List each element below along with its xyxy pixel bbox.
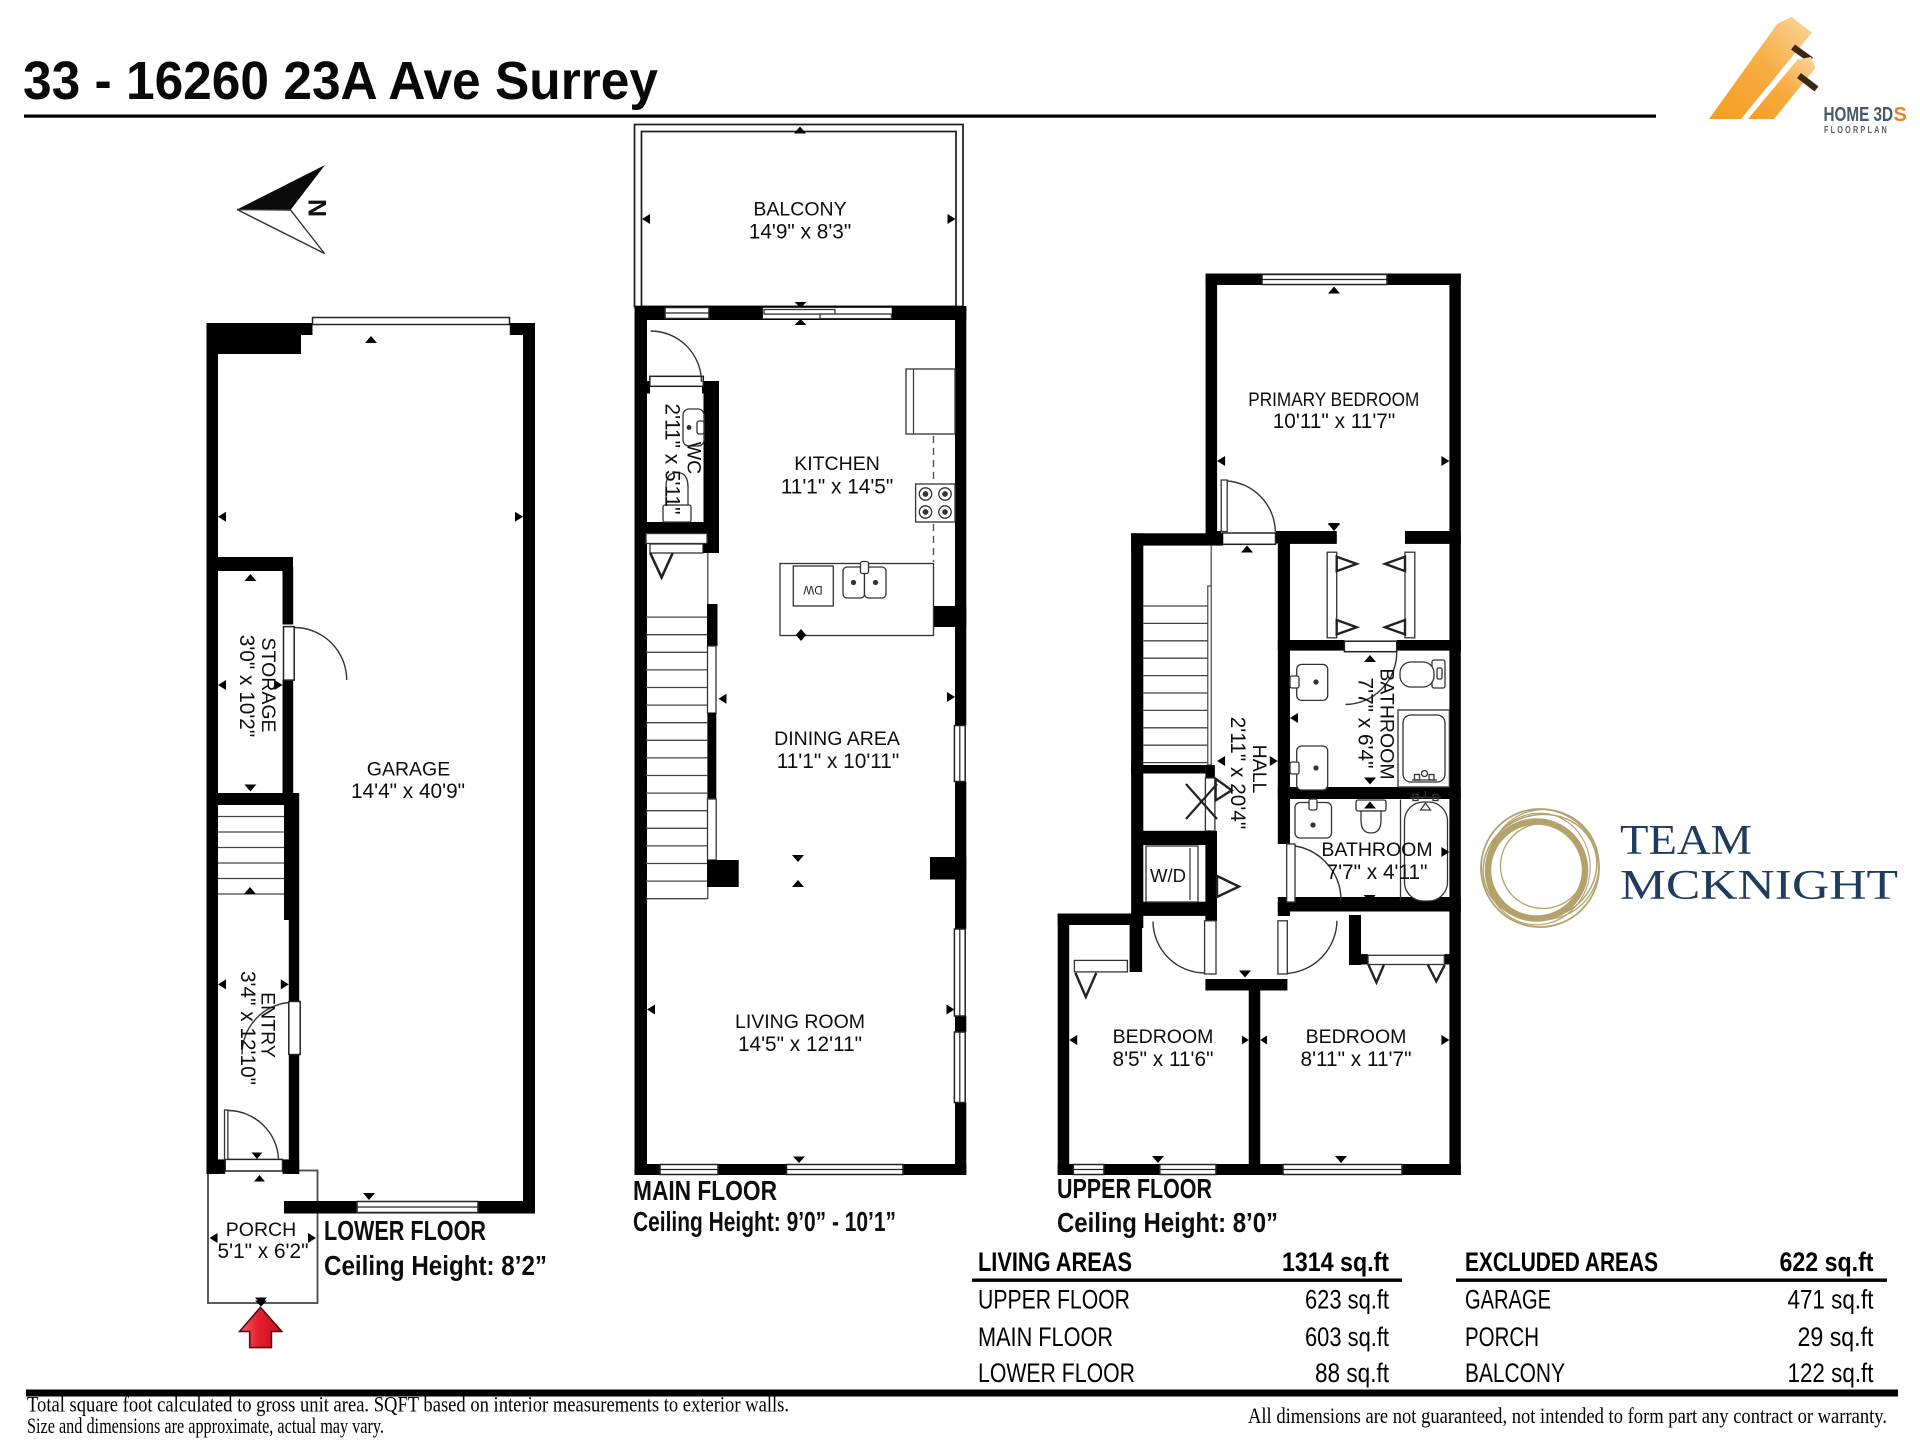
svg-text:MAIN FLOOR: MAIN FLOOR <box>633 1175 777 1206</box>
svg-text:11'1" x 14'5": 11'1" x 14'5" <box>781 476 894 499</box>
svg-text:BATHROOM: BATHROOM <box>1376 668 1398 779</box>
svg-text:3'0" x 10'2": 3'0" x 10'2" <box>235 635 258 738</box>
svg-text:Ceiling Height: 8’2”: Ceiling Height: 8’2” <box>324 1250 547 1281</box>
svg-text:WC: WC <box>683 442 705 475</box>
svg-text:PORCH: PORCH <box>1465 1322 1539 1352</box>
svg-text:BATHROOM: BATHROOM <box>1321 839 1432 861</box>
svg-text:122 sq.ft: 122 sq.ft <box>1788 1358 1874 1388</box>
svg-text:5'1" x 6'2": 5'1" x 6'2" <box>218 1240 309 1263</box>
svg-text:623 sq.ft: 623 sq.ft <box>1305 1285 1389 1315</box>
svg-text:8'5" x 11'6": 8'5" x 11'6" <box>1113 1048 1214 1071</box>
svg-text:PORCH: PORCH <box>226 1219 296 1241</box>
svg-text:14'5" x 12'11": 14'5" x 12'11" <box>738 1033 862 1056</box>
svg-text:BEDROOM: BEDROOM <box>1306 1026 1407 1048</box>
svg-text:33 - 16260 23A Ave Surrey: 33 - 16260 23A Ave Surrey <box>23 51 658 111</box>
svg-text:EXCLUDED AREAS: EXCLUDED AREAS <box>1465 1247 1658 1277</box>
svg-text:7'7" x 4'11": 7'7" x 4'11" <box>1327 861 1428 884</box>
svg-text:1314 sq.ft: 1314 sq.ft <box>1282 1247 1389 1277</box>
svg-text:N: N <box>302 199 330 217</box>
svg-text:DW: DW <box>803 583 822 595</box>
svg-text:UPPER FLOOR: UPPER FLOOR <box>1057 1173 1212 1204</box>
svg-text:UPPER FLOOR: UPPER FLOOR <box>978 1285 1130 1315</box>
svg-text:LOWER FLOOR: LOWER FLOOR <box>978 1358 1135 1388</box>
svg-text:10'11" x 11'7": 10'11" x 11'7" <box>1273 410 1396 433</box>
svg-text:7'7" x 6'4": 7'7" x 6'4" <box>1354 678 1377 769</box>
svg-text:29 sq.ft: 29 sq.ft <box>1798 1322 1874 1352</box>
svg-text:LIVING ROOM: LIVING ROOM <box>735 1011 865 1033</box>
svg-text:FLOORPLAN: FLOORPLAN <box>1824 125 1889 136</box>
svg-text:BEDROOM: BEDROOM <box>1113 1026 1214 1048</box>
svg-text:MAIN FLOOR: MAIN FLOOR <box>978 1322 1113 1352</box>
svg-text:Ceiling Height: 9’0” - 10’1”: Ceiling Height: 9’0” - 10’1” <box>633 1206 896 1237</box>
svg-text:All dimensions are not guarant: All dimensions are not guaranteed, not i… <box>1248 1403 1887 1428</box>
svg-text:STORAGE: STORAGE <box>257 638 279 733</box>
svg-text:Size and dimensions are approx: Size and dimensions are approximate, act… <box>27 1413 384 1438</box>
svg-text:KITCHEN: KITCHEN <box>794 453 880 475</box>
svg-text:14'4" x 40'9": 14'4" x 40'9" <box>351 780 465 803</box>
svg-text:GARAGE: GARAGE <box>1465 1285 1551 1315</box>
svg-text:88 sq.ft: 88 sq.ft <box>1315 1358 1389 1388</box>
svg-text:DINING AREA: DINING AREA <box>774 728 900 750</box>
svg-text:W/D: W/D <box>1150 865 1186 886</box>
svg-text:Ceiling Height: 8’0”: Ceiling Height: 8’0” <box>1057 1207 1278 1238</box>
svg-text:BALCONY: BALCONY <box>1465 1358 1565 1388</box>
svg-text:8'11" x 11'7": 8'11" x 11'7" <box>1301 1048 1412 1071</box>
svg-text:14'9" x 8'3": 14'9" x 8'3" <box>749 221 852 244</box>
svg-text:LIVING AREAS: LIVING AREAS <box>978 1247 1132 1277</box>
svg-text:S: S <box>1894 104 1907 126</box>
svg-text:MCKNIGHT: MCKNIGHT <box>1620 863 1898 909</box>
svg-text:HALL: HALL <box>1248 745 1270 794</box>
svg-text:603 sq.ft: 603 sq.ft <box>1305 1322 1389 1352</box>
svg-text:TEAM: TEAM <box>1620 818 1752 864</box>
svg-text:PRIMARY BEDROOM: PRIMARY BEDROOM <box>1248 389 1419 411</box>
svg-text:622 sq.ft: 622 sq.ft <box>1780 1247 1874 1277</box>
svg-text:HOME 3D: HOME 3D <box>1824 104 1894 126</box>
svg-text:471 sq.ft: 471 sq.ft <box>1788 1285 1874 1315</box>
svg-text:11'1" x 10'11": 11'1" x 10'11" <box>777 750 900 773</box>
svg-text:2'11" x 5'11": 2'11" x 5'11" <box>661 404 684 515</box>
svg-text:BALCONY: BALCONY <box>753 199 846 221</box>
svg-text:2'11" x 20'4": 2'11" x 20'4" <box>1226 717 1249 830</box>
svg-text:ENTRY: ENTRY <box>257 992 279 1058</box>
svg-text:3'4" x 12'10": 3'4" x 12'10" <box>236 971 259 1085</box>
svg-text:GARAGE: GARAGE <box>367 759 450 781</box>
svg-text:LOWER FLOOR: LOWER FLOOR <box>324 1215 486 1246</box>
